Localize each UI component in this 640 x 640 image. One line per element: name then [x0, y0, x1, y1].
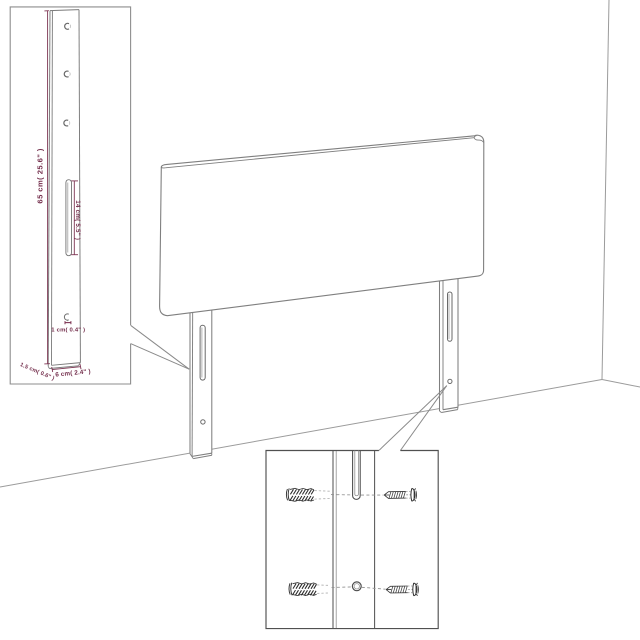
svg-text:65 cm( 25.6" ): 65 cm( 25.6" ) — [35, 148, 44, 204]
svg-text:14 cm( 5.5" ): 14 cm( 5.5" ) — [74, 200, 81, 240]
svg-text:1 cm( 0.4" ): 1 cm( 0.4" ) — [51, 327, 85, 333]
